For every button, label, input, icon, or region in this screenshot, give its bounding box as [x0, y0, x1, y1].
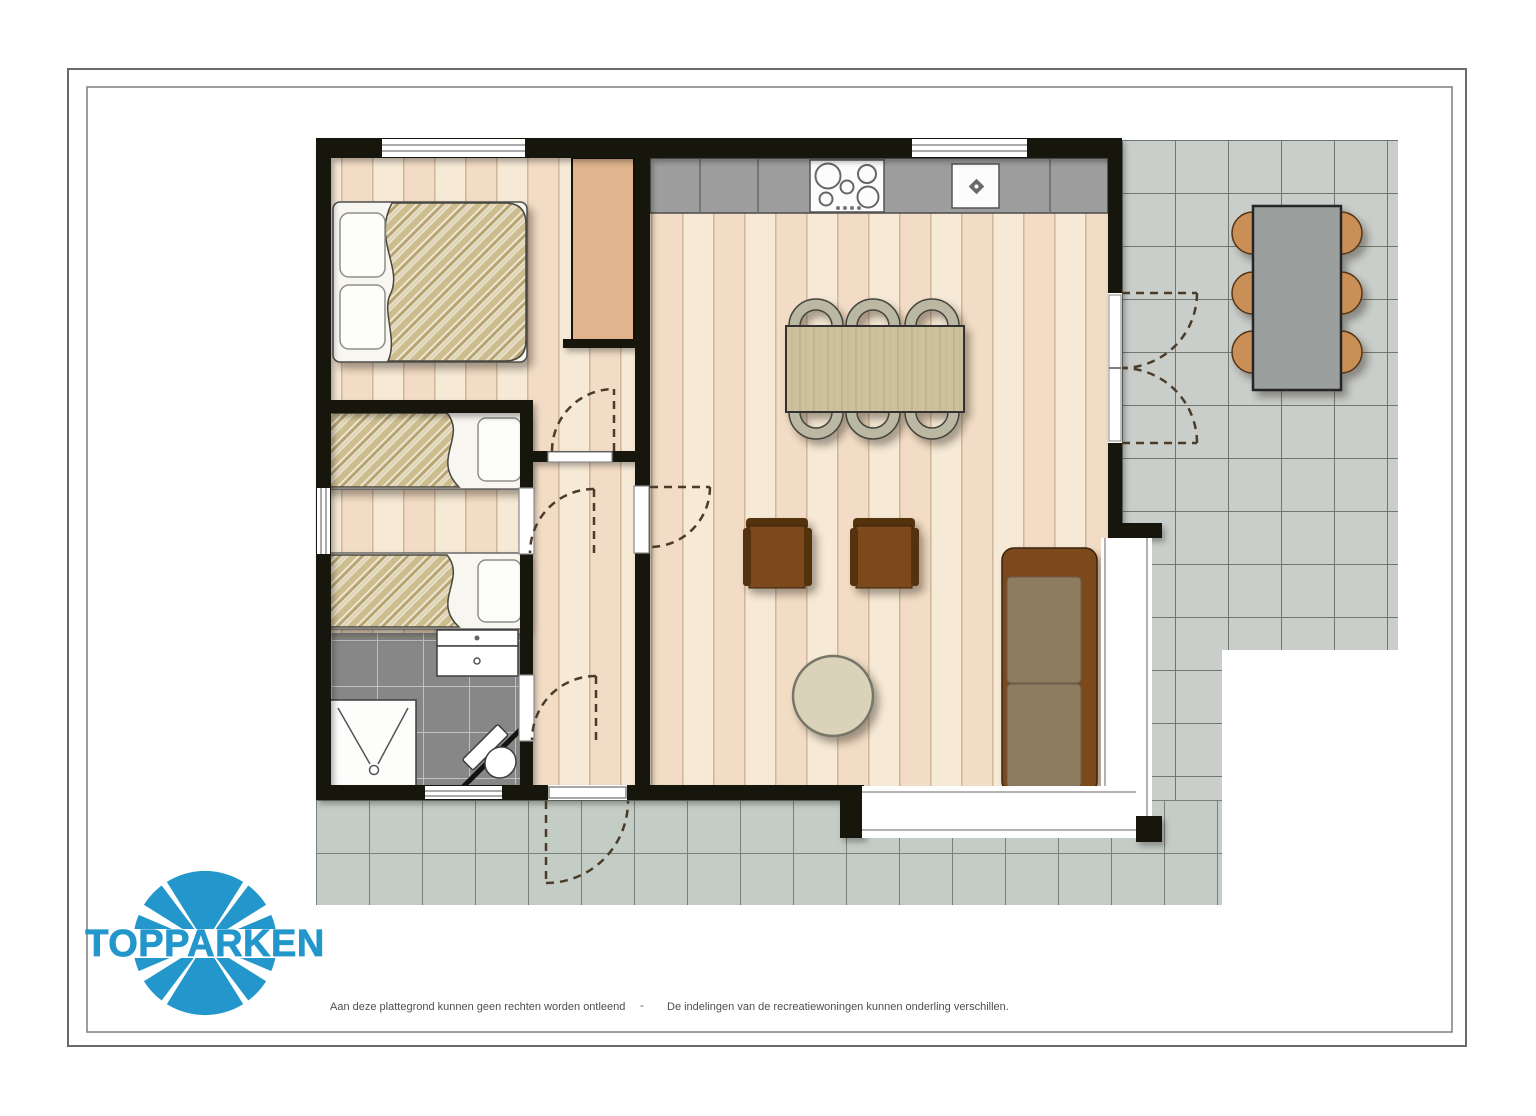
- armchair-armrest: [804, 528, 812, 586]
- hallway-floor: [527, 453, 635, 788]
- armchair-armrest: [743, 528, 751, 586]
- corner-post: [1136, 816, 1162, 842]
- pillow: [478, 418, 521, 481]
- outdoor-table: [1253, 206, 1341, 390]
- door-leaf-living: [634, 486, 649, 553]
- outdoor-dining-set: [1232, 206, 1362, 390]
- cooktop-icon: [810, 160, 884, 212]
- disclaimer-separator: -: [640, 1000, 644, 1012]
- pillow: [340, 285, 385, 349]
- sofa-cushion: [1007, 577, 1081, 683]
- wall-east-stub: [1122, 523, 1162, 538]
- single-bed-a: [321, 411, 526, 489]
- logo-wordmark: TOPPARKEN: [85, 923, 325, 965]
- armchair-left: [743, 518, 812, 588]
- floorplan-page: TOPPARKEN Aan deze plattegrond kunnen ge…: [0, 0, 1536, 1116]
- armchair-armrest: [850, 528, 858, 586]
- single-bed-b: [321, 553, 526, 629]
- topparken-logo: TOPPARKEN: [85, 871, 325, 1015]
- single-bed-blanket: [322, 555, 459, 627]
- sofa: [1002, 548, 1097, 793]
- wall-west: [316, 138, 331, 800]
- footer: Aan deze plattegrond kunnen geen rechten…: [330, 1000, 1009, 1013]
- armchair-right: [850, 518, 919, 588]
- pillow: [340, 213, 385, 277]
- dining-table: [786, 326, 964, 412]
- floorplan-drawing: TOPPARKEN Aan deze plattegrond kunnen ge…: [0, 0, 1536, 1116]
- window-bedroom2: [317, 488, 330, 554]
- armchair-seat: [856, 526, 912, 588]
- shower-icon: [330, 700, 416, 790]
- pillow: [478, 560, 521, 622]
- window-kitchen: [912, 139, 1027, 157]
- bay-wall-stub: [840, 785, 864, 838]
- window-bedroom1: [382, 139, 525, 157]
- front-door-leaf: [549, 787, 626, 798]
- sofa-cushion: [1007, 684, 1081, 787]
- armchair-seat: [749, 526, 805, 588]
- kitchen: [650, 158, 1108, 213]
- wall-living-west: [635, 158, 650, 800]
- double-bed: [333, 202, 527, 362]
- kitchen-sink-icon: [952, 164, 999, 208]
- armchair-armrest: [911, 528, 919, 586]
- glass-wall-east: [1101, 538, 1152, 816]
- wall-closet-stub: [563, 339, 635, 348]
- wardrobe-closet: [572, 158, 634, 340]
- disclaimer-left: Aan deze plattegrond kunnen geen rechten…: [330, 1001, 625, 1013]
- vanity-sink-icon: [437, 630, 518, 676]
- window-bathroom: [425, 786, 502, 799]
- wall-bedroom1-bedroom2: [316, 400, 527, 413]
- single-bed-blanket: [322, 413, 459, 487]
- door-leaf-bedroom1: [548, 452, 612, 462]
- double-bed-blanket: [385, 203, 526, 361]
- coffee-table: [793, 656, 873, 736]
- disclaimer-right: De indelingen van de recreatiewoningen k…: [667, 1001, 1009, 1013]
